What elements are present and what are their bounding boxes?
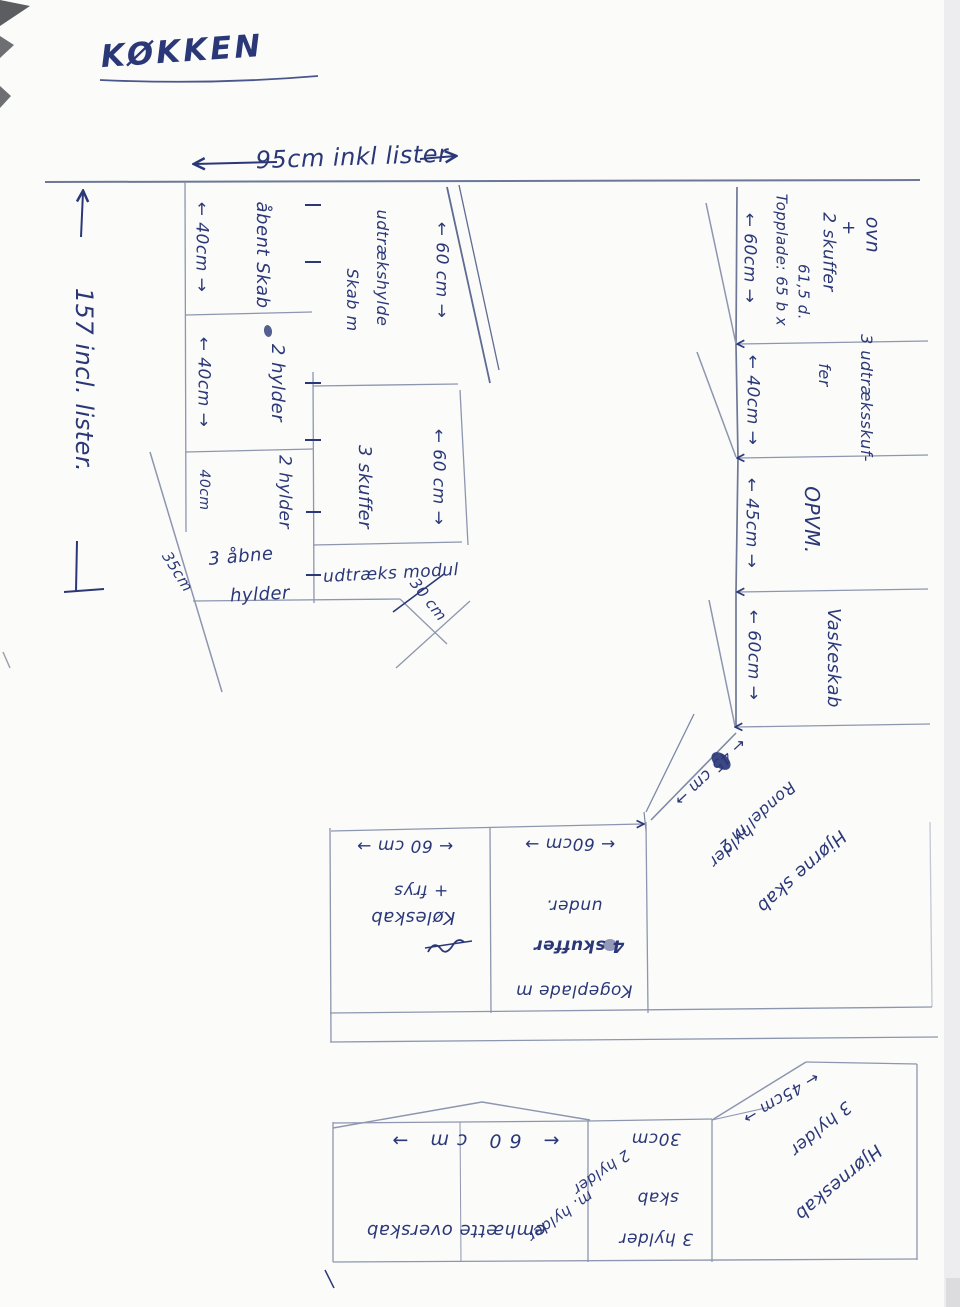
label-3-open-shelves-1: 3 åbne — [208, 545, 274, 569]
label-cabinet-with: Skab m — [344, 268, 360, 331]
label-dishwasher: OPVM. — [802, 486, 822, 554]
dim-40cm-row3: 40cm — [197, 469, 211, 510]
dim-45cm-dishwasher: ← 45cm → — [743, 478, 760, 569]
dim-top-width: 95cm inkl lister — [255, 142, 448, 173]
note-countertop-2: 61,5 d. — [796, 264, 811, 320]
label-pullout-shelf: udtrækshylde — [374, 210, 390, 327]
label-3-drawers: 3 skuffer — [355, 445, 373, 529]
label-3-pullout-drawers-2: fer — [816, 363, 832, 387]
label-3-open-shelves-2: hylder — [230, 584, 291, 605]
dim-40cm-right: ← 40cm → — [744, 355, 761, 446]
dim-60cm-top: ← 60 cm → — [433, 222, 450, 319]
label-shelf-cab-shelves: 3 hylder — [619, 1230, 693, 1247]
label-fridge-1: Køleskab — [371, 908, 455, 926]
label-2-drawers: 2 skuffer — [820, 212, 837, 292]
note-hood-shelves-2: 2 hylder — [570, 1147, 632, 1197]
label-plus: + — [839, 220, 857, 236]
label-hob-2: 4 skuffer — [534, 937, 624, 954]
dim-35cm: 35cm — [159, 549, 195, 594]
kitchen-sketch-page: KØKKEN 95cm inkl lister 157 incl. lister… — [0, 0, 960, 1307]
dim-60cm-oven: ← 60cm → — [741, 213, 758, 304]
dim-30cm: 30 cm — [407, 576, 449, 624]
label-oven: ovn — [863, 217, 882, 253]
dim-30cm-shelf-cab: 30cm — [631, 1130, 681, 1147]
label-2-shelves-a: 2 hylder — [268, 344, 286, 422]
label-3-pullout-drawers-1: 3 udtræksskuf- — [858, 334, 874, 462]
dim-left-height: 157 incl. lister. — [72, 288, 96, 472]
label-corner-cabinet-mid: Hjørne skab — [753, 827, 849, 916]
label-hood-cabinet: emhætte overskab — [366, 1221, 545, 1239]
dim-60cm-mid: ← 60 cm → — [430, 429, 447, 526]
label-open-cabinet: åbent Skab — [253, 201, 271, 308]
label-pullout-module: udtræks modul — [323, 562, 460, 586]
handwritten-labels: KØKKEN 95cm inkl lister 157 incl. lister… — [0, 0, 960, 1307]
drawing-title: KØKKEN — [100, 31, 264, 73]
dim-60cm-hob: ← 60cm → — [525, 835, 616, 852]
dim-40cm-row1: ← 40cm → — [193, 202, 210, 293]
label-hob-3: under. — [546, 897, 603, 914]
label-2-shelves-b: 2 hylder — [276, 455, 293, 529]
label-sink-cabinet: Vaskeskab — [824, 608, 842, 708]
dim-60cm-sink: ← 60cm → — [745, 610, 762, 701]
dim-60cm-hood: ← 60 cm → — [384, 1131, 559, 1150]
dim-60cm-fridge: ← 60 cm → — [357, 837, 454, 854]
label-bottom-corner-shelves: 3 hylder — [786, 1098, 854, 1159]
dim-40cm-row2: ← 40cm → — [195, 337, 212, 428]
note-hood-shelves-1: m. hylder — [525, 1188, 596, 1244]
label-hob-1: Kogeplade m — [516, 982, 633, 999]
label-shelf-cab: skab — [637, 1189, 679, 1206]
note-countertop-1: Topplade: 65 b x — [774, 194, 789, 326]
dim-45cm-bottom-corner: ← 45cm → — [740, 1069, 822, 1127]
label-fridge-2: + frys — [394, 882, 449, 899]
dim-45cm-corner: ← 45 cm → — [671, 735, 749, 809]
